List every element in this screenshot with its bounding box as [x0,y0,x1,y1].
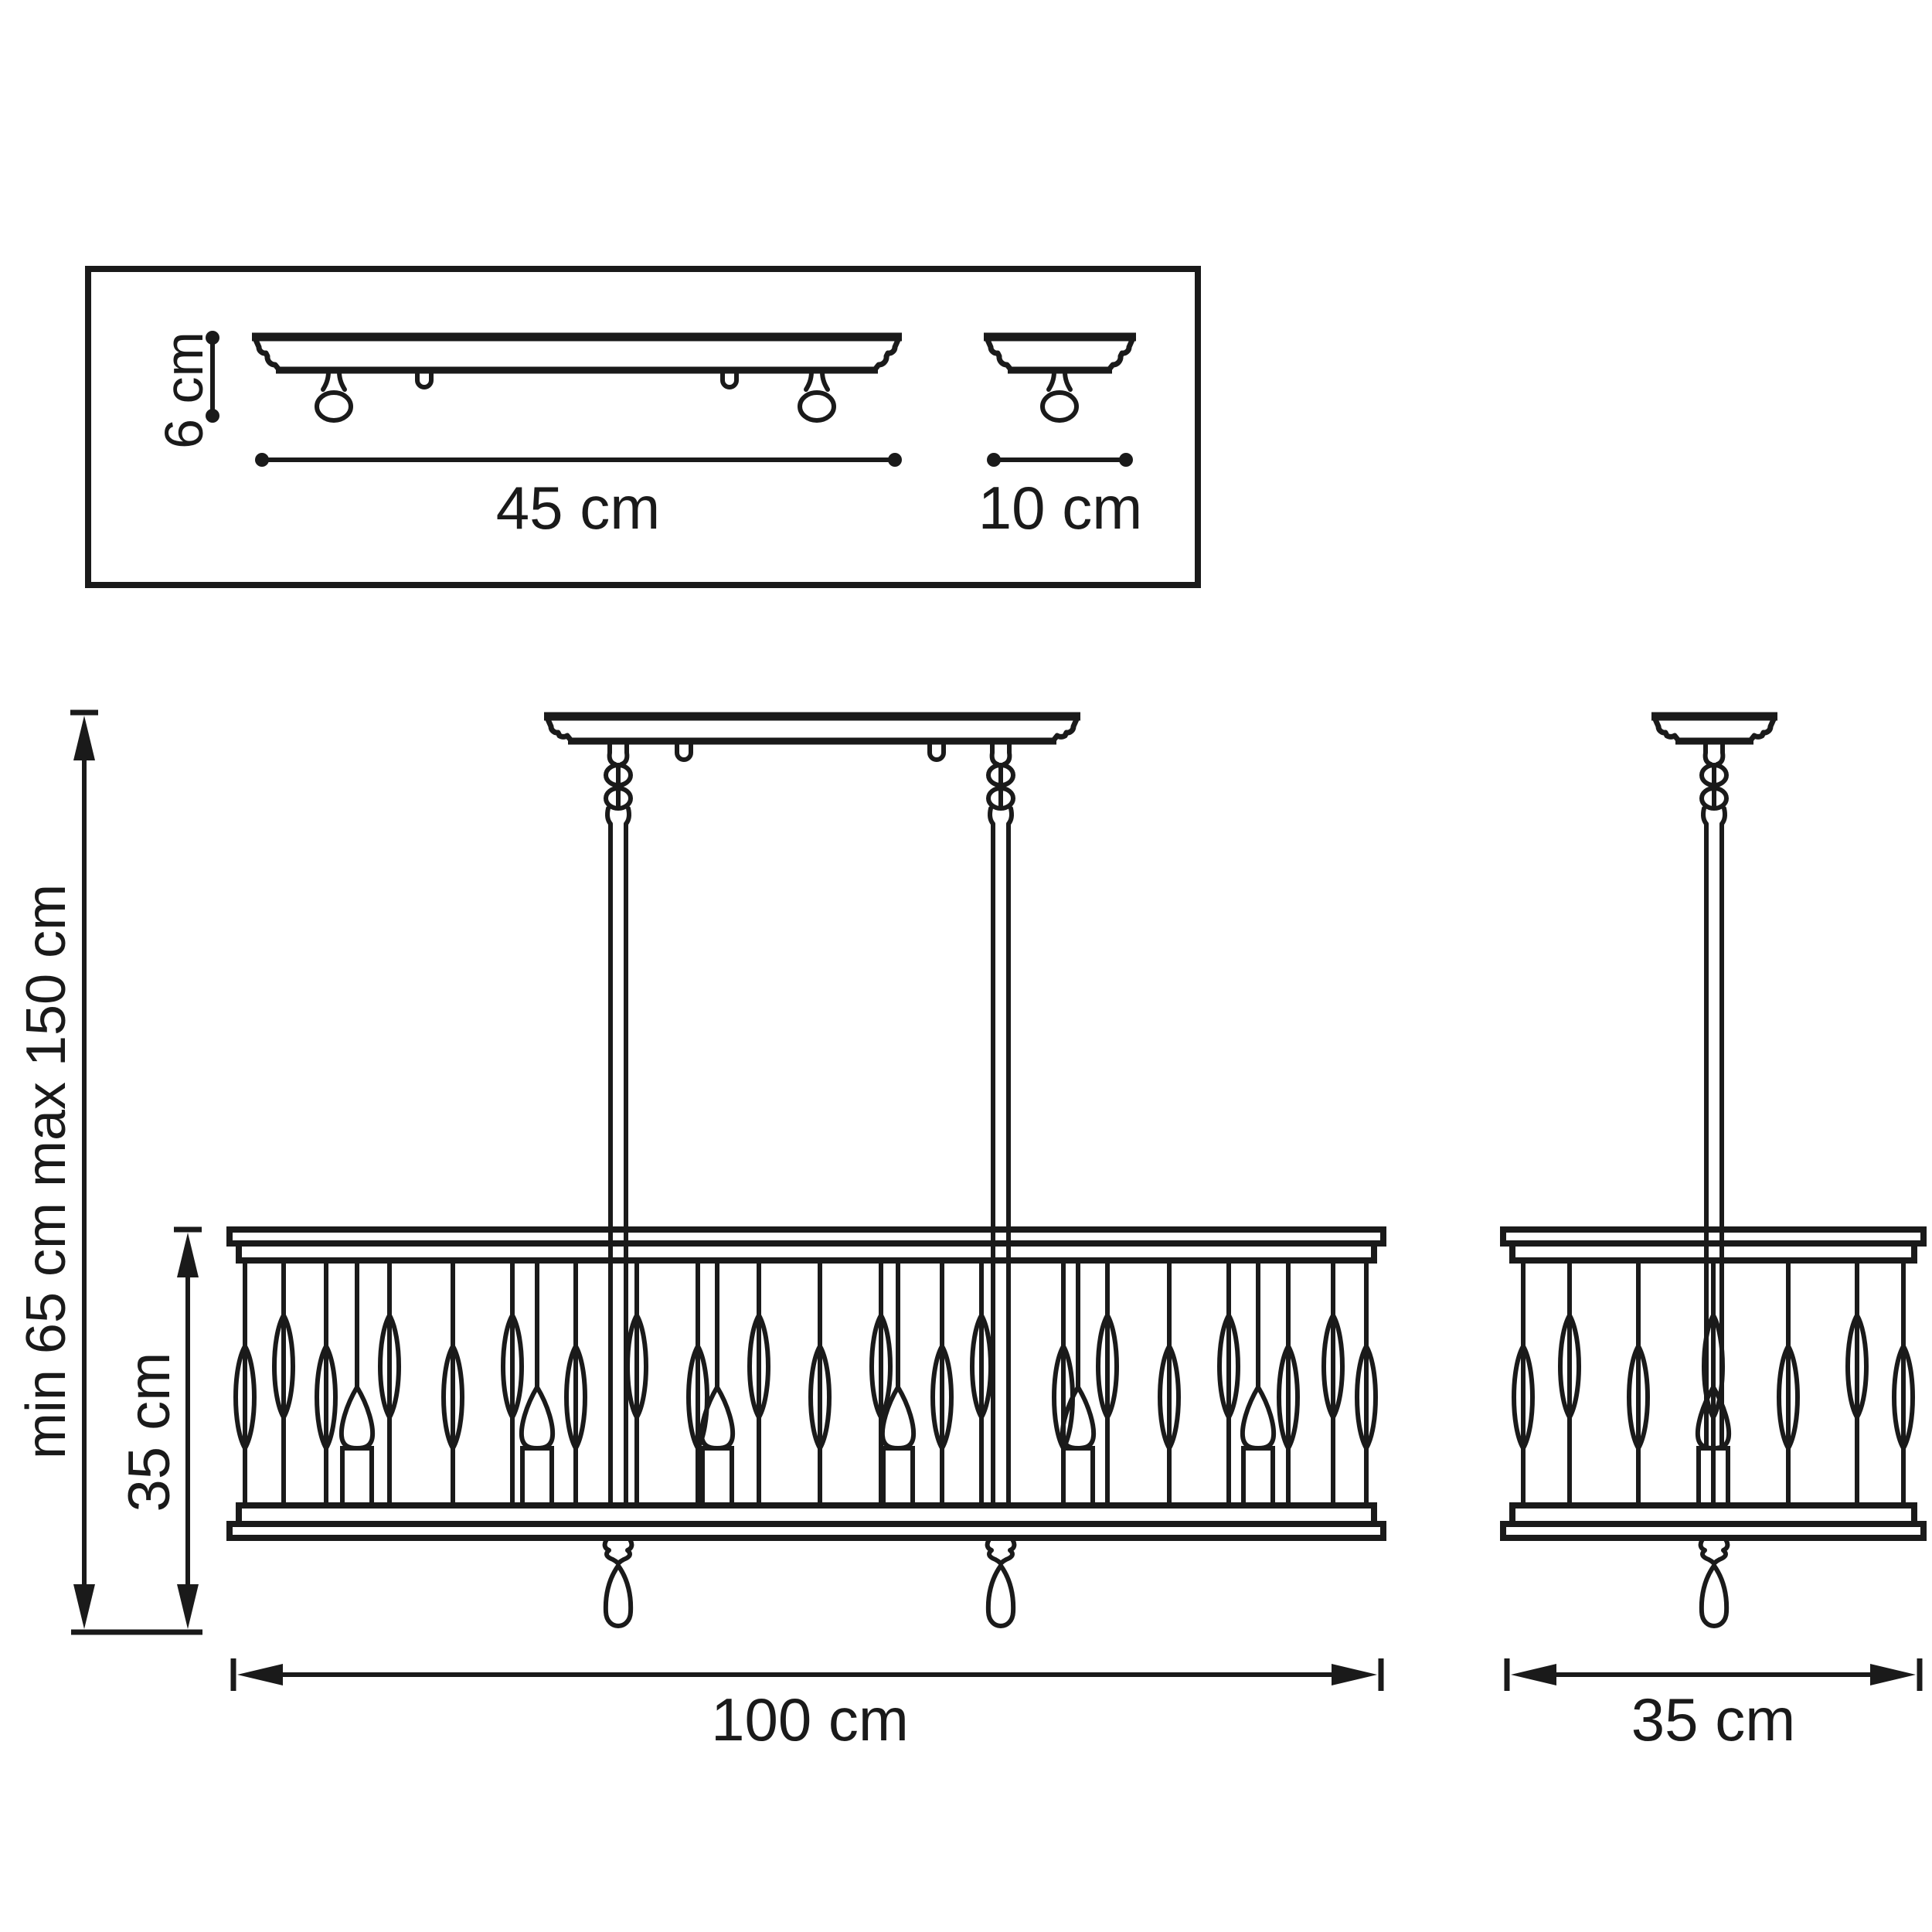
plate-height-label: 6 cm [154,332,214,449]
plate-length-label: 45 cm [496,474,660,542]
suspension-height-label: min 65 cm max 150 cm [15,884,77,1459]
chandelier-dimension-diagram: 45 cm 10 cm 6 cm min 65 cm max 150 cm 35… [0,0,1932,1932]
fixture-depth-label: 35 cm [1631,1685,1795,1753]
plate-width-label: 10 cm [978,474,1142,542]
chandelier-side-view [1503,716,1923,1626]
shade-height-label: 35 cm [117,1352,182,1512]
diagram-stage: 45 cm 10 cm 6 cm min 65 cm max 150 cm 35… [0,0,1932,1932]
fixture-length-label: 100 cm [711,1685,909,1753]
chandelier-front-view [230,716,1383,1626]
